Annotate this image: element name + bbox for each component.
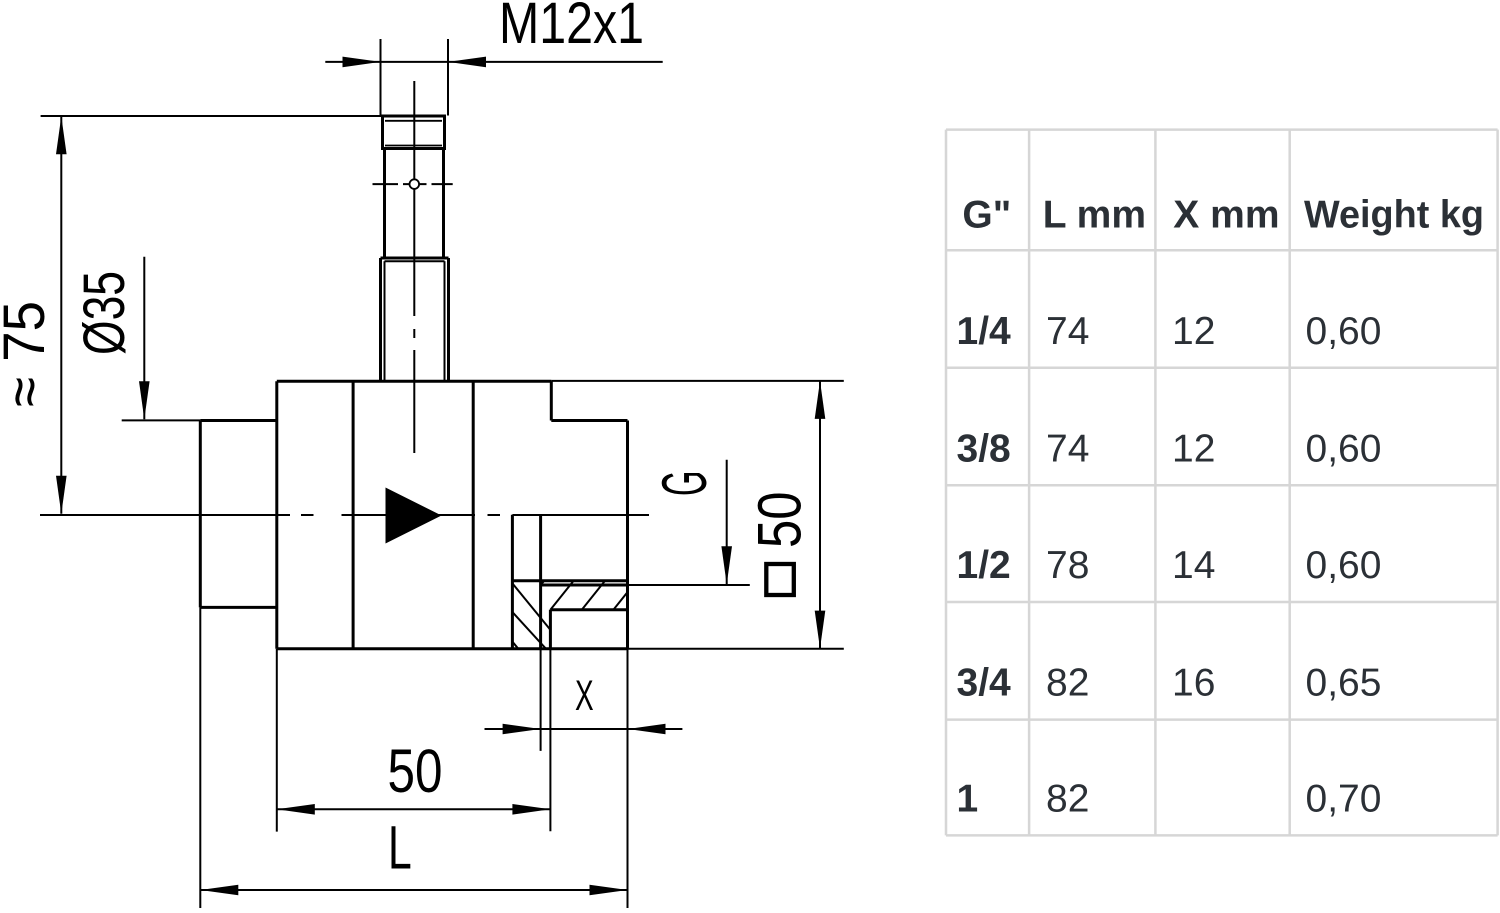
svg-text:1: 1: [957, 777, 979, 820]
svg-text:14: 14: [1172, 544, 1215, 587]
svg-text:74: 74: [1046, 310, 1089, 353]
svg-text:0,60: 0,60: [1306, 427, 1382, 470]
svg-text:1/4: 1/4: [957, 310, 1012, 353]
svg-text:G: G: [650, 471, 720, 496]
svg-text:12: 12: [1172, 310, 1215, 353]
svg-text:0,60: 0,60: [1306, 544, 1382, 587]
svg-text:M12x1: M12x1: [499, 0, 644, 56]
svg-text:74: 74: [1046, 427, 1089, 470]
svg-text:12: 12: [1172, 427, 1215, 470]
svg-text:82: 82: [1046, 777, 1089, 820]
svg-text:3/4: 3/4: [957, 662, 1012, 705]
svg-text:82: 82: [1046, 662, 1089, 705]
svg-text:Weight kg: Weight kg: [1304, 194, 1484, 237]
svg-text:X mm: X mm: [1173, 194, 1279, 237]
svg-text:L mm: L mm: [1043, 194, 1146, 237]
svg-text:Ø35: Ø35: [72, 271, 137, 355]
svg-text:50: 50: [388, 737, 443, 805]
svg-text:0,60: 0,60: [1306, 310, 1382, 353]
svg-text:L: L: [388, 814, 412, 882]
svg-text:X: X: [575, 671, 594, 720]
svg-text:G": G": [962, 194, 1011, 237]
svg-text:0,70: 0,70: [1306, 777, 1382, 820]
svg-text:≈ 75: ≈ 75: [0, 301, 57, 407]
svg-text:50: 50: [746, 492, 814, 549]
svg-text:0,65: 0,65: [1306, 662, 1382, 705]
svg-text:3/8: 3/8: [957, 427, 1011, 470]
svg-text:1/2: 1/2: [957, 544, 1011, 587]
svg-text:16: 16: [1172, 662, 1215, 705]
svg-text:78: 78: [1046, 544, 1089, 587]
